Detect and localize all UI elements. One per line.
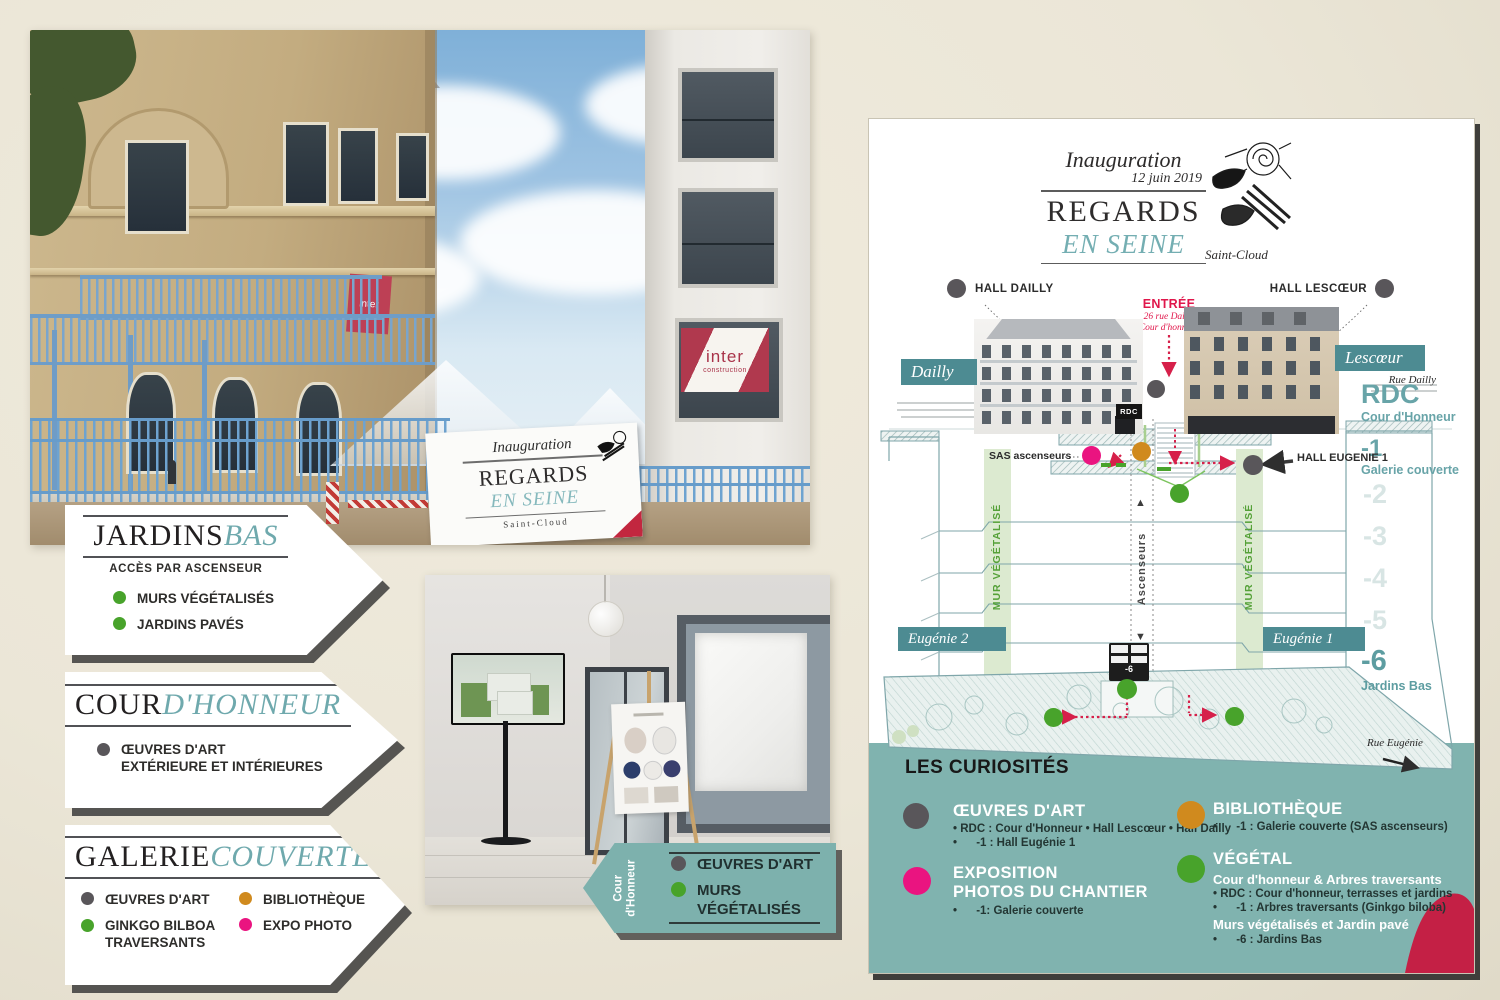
tag-title-main: GALERIE	[75, 840, 210, 873]
arrow-down-icon: ▼	[1135, 631, 1146, 643]
balcony-row	[980, 404, 1137, 407]
list-item: EXPO PHOTO	[239, 918, 359, 952]
item-line1: GINKGO BILBOA	[105, 918, 215, 933]
ascenseurs-label: Ascenseurs	[1136, 509, 1148, 629]
floor-rdc: RDC	[1361, 381, 1420, 408]
tag-title: COURD'HONNEUR	[65, 684, 351, 727]
tv-screen	[453, 655, 563, 723]
side-line2: d'Honneur	[626, 859, 638, 916]
green-dot-icon	[1170, 484, 1189, 503]
tag-galerie-couverte: GALERIECOUVERTE ŒUVRES D'ART BIBLIOTHÈQU…	[65, 825, 405, 985]
lescoeur-label-text: Lescœur	[1345, 348, 1403, 368]
list-item: BIBLIOTHÈQUE	[239, 892, 359, 909]
list-item: MURS VÉGÉTALISÉS	[671, 882, 818, 920]
tag-subtitle: ACCÈS PAR ASCENSEUR	[65, 563, 307, 575]
gray-dot-icon	[1243, 455, 1263, 475]
tag-title: JARDINSBAS	[83, 515, 288, 558]
item-line1: ŒUVRES D'ART	[121, 742, 225, 757]
legend-vegetal-line1: • RDC : Cour d'honneur, terrasses et jar…	[1213, 887, 1452, 902]
floor-m6-label: Jardins Bas	[1361, 679, 1432, 693]
sculptor-sketch-icon	[591, 429, 633, 465]
green-dot-icon	[81, 919, 94, 932]
item-label: MURS VÉGÉTALISÉS	[137, 591, 274, 608]
balcony-rail	[682, 119, 774, 121]
list-item: JARDINS PAVÉS	[113, 617, 383, 634]
street-photo: inter inter construction	[30, 30, 810, 545]
dormer	[1198, 312, 1210, 325]
elevator-cab	[1111, 645, 1147, 663]
board-photo	[654, 786, 679, 803]
green-dot-icon	[113, 617, 126, 630]
tag-side-label-area: Courd'Honneur	[583, 843, 669, 933]
tv-stand-pole	[503, 721, 508, 839]
green-dot-icon	[1044, 708, 1063, 727]
storefront	[1188, 416, 1335, 434]
tag-galerie-couverte-shape: GALERIECOUVERTE ŒUVRES D'ART BIBLIOTHÈQU…	[65, 825, 405, 985]
dailly-label: Dailly	[901, 359, 977, 385]
inter-sign-subtext: construction	[703, 367, 747, 374]
item-label: GINKGO BILBOATRAVERSANTS	[105, 918, 215, 952]
board-sample-circle	[623, 761, 641, 779]
gray-dot-icon	[1375, 279, 1394, 298]
window	[283, 122, 329, 206]
window	[678, 68, 778, 162]
dormer	[1230, 312, 1242, 325]
item-label: JARDINS PAVÉS	[137, 617, 244, 634]
dormer	[1294, 312, 1306, 325]
poster-header: Inauguration 12 juin 2019 REGARDS EN SEI…	[1041, 147, 1206, 267]
legend-title: LES CURIOSITÉS	[905, 757, 1069, 779]
board-swatch	[624, 727, 647, 754]
tag-cour-honneur: COURD'HONNEUR ŒUVRES D'ARTEXTÉRIEURE ET …	[65, 672, 398, 808]
roof	[980, 319, 1137, 339]
blue-fence	[30, 418, 450, 513]
poster-city: Saint-Cloud	[1205, 247, 1295, 263]
rue-eugenie-label: Rue Eugénie	[1367, 737, 1447, 749]
legend-expo-line1: • -1: Galerie couverte	[953, 904, 1084, 919]
arrow-up-icon: ▲	[1135, 497, 1146, 509]
legend-expo-title2: PHOTOS DU CHANTIER	[953, 884, 1148, 901]
item-label: EXPO PHOTO	[263, 918, 352, 935]
window-row	[1190, 337, 1333, 351]
legend-vegetal-line3: • -6 : Jardins Bas	[1213, 933, 1322, 948]
gray-dot-icon	[97, 743, 110, 756]
board-sample-circle	[663, 760, 681, 778]
hall-dailly-label: HALL DAILLY	[975, 283, 1054, 295]
pink-dot-icon	[239, 918, 252, 931]
green-dot-icon	[1225, 707, 1244, 726]
hall-eugenie-label: HALL EUGENIE 1	[1297, 452, 1388, 464]
orange-dot-icon	[239, 892, 252, 905]
item-label: MURS VÉGÉTALISÉS	[697, 882, 818, 920]
tag-title-accent: D'HONNEUR	[162, 688, 341, 721]
floor-m3: -3	[1363, 523, 1387, 550]
dailly-label-text: Dailly	[911, 362, 954, 382]
tag-cour-honneur-teal-shape: Courd'Honneur ŒUVRES D'ART MURS VÉGÉTALI…	[583, 843, 836, 933]
window	[678, 188, 778, 288]
floor-m6: -6	[1361, 647, 1387, 676]
lescoeur-building	[1184, 307, 1339, 434]
orange-dot-icon	[1177, 801, 1205, 829]
item-label: BIBLIOTHÈQUE	[263, 892, 365, 909]
veranda-railing	[30, 314, 435, 365]
fence-rail	[30, 491, 450, 494]
gray-dot-icon	[947, 279, 966, 298]
board-swatch	[652, 726, 677, 755]
pink-dot-icon	[1082, 446, 1101, 465]
tag-galerie-couverte-header: GALERIECOUVERTE	[65, 825, 330, 879]
board-sample-circle	[643, 761, 663, 781]
green-dot-icon	[1177, 855, 1205, 883]
pendant-lamp	[588, 601, 624, 637]
dormer	[1262, 312, 1274, 325]
rdc-door-sign: RDC	[1116, 404, 1142, 419]
tag-jardins-bas-header: JARDINSBAS ACCÈS PAR ASCENSEUR	[65, 505, 307, 575]
elevator-floor-label: -6	[1111, 663, 1147, 675]
tag-items: MURS VÉGÉTALISÉS JARDINS PAVÉS	[113, 591, 383, 634]
window-row	[982, 345, 1135, 358]
building-render	[497, 691, 533, 715]
tag-cour-honneur-teal: Courd'Honneur ŒUVRES D'ART MURS VÉGÉTALI…	[583, 843, 836, 933]
orange-dot-icon	[1132, 442, 1151, 461]
item-label: ŒUVRES D'ART	[105, 892, 209, 909]
balcony-rail	[682, 243, 774, 245]
board-title-line	[633, 713, 663, 717]
floor-rdc-label: Cour d'Honneur	[1361, 410, 1456, 424]
legend-biblio-line1: • -1 : Galerie couverte (SAS ascenseurs)	[1213, 820, 1448, 835]
green-dot-icon	[671, 882, 686, 897]
window	[125, 140, 189, 234]
tag-side-label: Courd'Honneur	[613, 859, 639, 916]
inter-construction-sign: inter construction	[681, 328, 769, 392]
side-line1: Cour	[613, 875, 625, 902]
tag-jardins-bas: JARDINSBAS ACCÈS PAR ASCENSEUR MURS VÉGÉ…	[65, 505, 383, 655]
person	[168, 460, 176, 484]
legend-biblio-title: BIBLIOTHÈQUE	[1213, 801, 1342, 818]
list-item: GINKGO BILBOATRAVERSANTS	[81, 918, 231, 952]
balcony-row	[980, 382, 1137, 385]
tag-title-accent: BAS	[224, 519, 279, 552]
window	[338, 128, 378, 204]
item-label: ŒUVRES D'ART	[697, 856, 813, 875]
window-row	[982, 411, 1135, 424]
gray-dot-icon	[903, 803, 929, 829]
hall-lescoeur-label: HALL LESCŒUR	[1249, 283, 1367, 295]
header-rule	[1041, 263, 1206, 265]
easel-board	[611, 702, 689, 815]
header-rule	[1041, 190, 1206, 192]
tag-cour-honneur-shape: COURD'HONNEUR ŒUVRES D'ARTEXTÉRIEURE ET …	[65, 672, 398, 808]
tag-title-main: JARDINS	[93, 519, 223, 552]
legend-vegetal-sub1: Cour d'honneur & Arbres traversants	[1213, 872, 1442, 887]
inauguration-banner: Inauguration REGARDS EN SEINE Saint-Clou…	[425, 423, 643, 545]
green-dot-icon	[1117, 679, 1137, 699]
green-dot-icon	[113, 591, 126, 604]
legend-oeuvres-line2: • -1 : Hall Eugénie 1	[953, 836, 1075, 851]
tv-display	[451, 653, 565, 725]
item-line2: TRAVERSANTS	[105, 935, 205, 950]
tag-cour-honneur-header: COURD'HONNEUR	[65, 672, 318, 727]
legend-vegetal-sub2: Murs végétalisés et Jardin pavé	[1213, 917, 1409, 932]
board-photo	[624, 787, 649, 804]
tag-title: GALERIECOUVERTE	[65, 836, 382, 879]
poster-date: 12 juin 2019	[1041, 171, 1206, 187]
floor-m1-label: Galerie couverte	[1361, 463, 1459, 477]
list-item: ŒUVRES D'ARTEXTÉRIEURE ET INTÉRIEURES	[97, 742, 398, 776]
legend-vegetal-title: VÉGÉTAL	[1213, 851, 1293, 868]
legend-oeuvres-title: ŒUVRES D'ART	[953, 803, 1085, 820]
fence-rail	[30, 439, 450, 442]
window-row	[982, 367, 1135, 380]
floor-m2: -2	[1363, 481, 1387, 508]
mur-vegetalise-label: MUR VÉGÉTALISÉ	[1243, 497, 1255, 617]
artwork-canvas	[695, 633, 807, 791]
pendant-cord	[604, 575, 606, 603]
sas-ascenseurs-label: SAS ascenseurs	[989, 450, 1071, 462]
gray-dot-icon	[1147, 380, 1165, 398]
item-line2: EXTÉRIEURE ET INTÉRIEURES	[121, 759, 323, 774]
list-item: MURS VÉGÉTALISÉS	[113, 591, 383, 608]
mur-vegetalise-label: MUR VÉGÉTALISÉ	[991, 497, 1003, 617]
tag-items: ŒUVRES D'ARTEXTÉRIEURE ET INTÉRIEURES	[97, 742, 398, 776]
rdc-door-text: RDC	[1120, 407, 1138, 416]
list-item: ŒUVRES D'ART	[671, 856, 818, 875]
pink-dot-icon	[903, 867, 931, 895]
banner-city: Saint-Cloud	[430, 512, 642, 533]
eugenie2-label: Eugénie 2	[898, 627, 1006, 651]
sculptor-sketch-icon	[1195, 135, 1295, 253]
legend-vegetal-line2: • -1 : Arbres traversants (Ginkgo biloba…	[1213, 901, 1446, 916]
tag-jardins-bas-shape: JARDINSBAS ACCÈS PAR ASCENSEUR MURS VÉGÉ…	[65, 505, 383, 655]
item-label: ŒUVRES D'ARTEXTÉRIEURE ET INTÉRIEURES	[121, 742, 323, 776]
cornice	[30, 268, 435, 275]
presentation-board: inter inter construction	[0, 0, 1500, 1000]
poster-subtitle: EN SEINE	[1041, 229, 1206, 260]
legend-expo-title1: EXPOSITION	[953, 865, 1058, 882]
floor-m5: -5	[1363, 607, 1387, 634]
eugenie1-text: Eugénie 1	[1273, 631, 1333, 648]
window	[396, 133, 429, 201]
poster-title: REGARDS	[1041, 195, 1206, 229]
eugenie2-text: Eugénie 2	[908, 631, 968, 648]
gray-dot-icon	[81, 892, 94, 905]
balcony-row	[980, 360, 1137, 363]
poster-kicker: Inauguration	[1041, 147, 1206, 173]
tag-items: ŒUVRES D'ART MURS VÉGÉTALISÉS	[669, 852, 820, 924]
window-row	[982, 389, 1135, 402]
eugenie1-label: Eugénie 1	[1263, 627, 1365, 651]
gray-dot-icon	[671, 856, 686, 871]
tag-items: ŒUVRES D'ART BIBLIOTHÈQUE GINKGO BILBOAT…	[81, 892, 405, 952]
tag-title-main: COUR	[75, 688, 162, 721]
elevator-icon: -6	[1109, 643, 1149, 681]
window-row	[1190, 385, 1333, 399]
list-item: ŒUVRES D'ART	[81, 892, 231, 909]
lescoeur-label: Lescœur	[1335, 345, 1425, 371]
inter-sign-text: inter	[706, 347, 744, 367]
floor-m4: -4	[1363, 565, 1387, 592]
tv-stand-base	[481, 837, 531, 845]
infographic-poster: Inauguration 12 juin 2019 REGARDS EN SEI…	[868, 118, 1475, 974]
tag-title-accent: COUVERTE	[210, 840, 371, 873]
window-row	[1190, 361, 1333, 375]
